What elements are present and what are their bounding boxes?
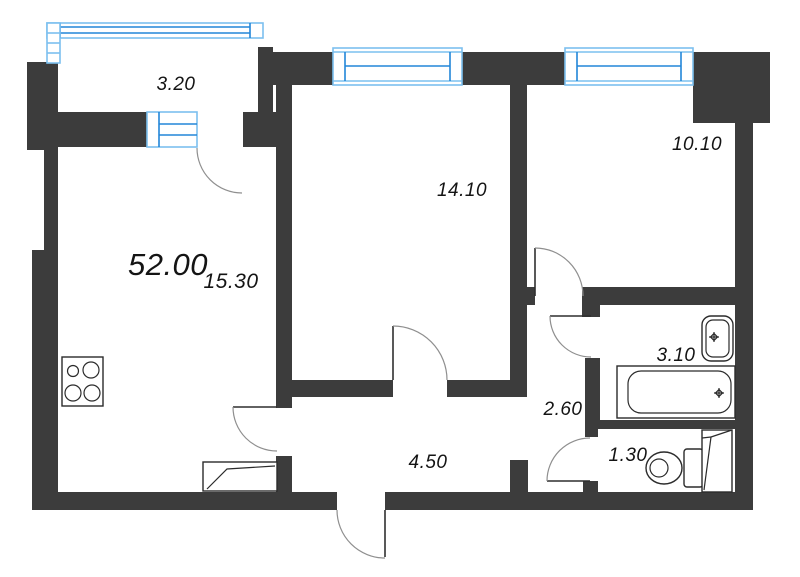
label-living-area: 15.30 — [203, 270, 258, 294]
wall-segment — [510, 460, 528, 492]
wall-segment — [510, 85, 527, 397]
balcony-glazing-icon — [47, 23, 263, 63]
wall-segment — [32, 492, 337, 510]
wall-segment — [44, 150, 58, 250]
wall-segment — [276, 85, 292, 380]
wall-segment — [32, 250, 58, 492]
wall-segment — [276, 456, 292, 492]
wc-door — [547, 438, 590, 481]
wall-segment — [693, 52, 770, 123]
wall-segment — [585, 358, 600, 420]
wall-segment — [527, 287, 535, 305]
wall-segment — [385, 492, 753, 510]
sink-icon — [702, 316, 733, 361]
stove-icon — [62, 357, 103, 406]
wall-segment — [462, 52, 575, 85]
label-bathroom-area: 3.10 — [657, 345, 696, 367]
window-icon — [333, 48, 462, 85]
window-icon — [565, 48, 693, 85]
label-hallway-area: 2.60 — [544, 399, 583, 421]
wall-segment — [585, 420, 737, 429]
bedroom-1-door — [393, 326, 447, 380]
wall-segment — [585, 429, 598, 437]
bathtub-icon — [617, 366, 735, 418]
water-heater-icon — [702, 430, 732, 492]
wall-segment — [292, 380, 393, 397]
wall-segment — [735, 123, 753, 510]
floor-plan-drawing — [0, 0, 800, 577]
label-total-area: 52.00 — [128, 247, 208, 283]
toilet-icon — [646, 449, 703, 487]
living-room-door — [233, 407, 277, 451]
balcony-door — [197, 148, 242, 193]
wall-segment — [276, 380, 292, 408]
wardrobe-icon — [203, 462, 277, 491]
wall-segment — [58, 112, 147, 147]
bathroom-door — [550, 316, 591, 357]
label-room-10-area: 10.10 — [672, 134, 722, 156]
bedroom-2-door — [535, 248, 583, 296]
balcony-window-unit-icon — [147, 112, 197, 147]
label-room-14-area: 14.10 — [437, 180, 487, 202]
wall-segment — [582, 287, 600, 317]
label-corridor-area: 4.50 — [409, 452, 448, 474]
entrance-door — [337, 510, 385, 558]
label-wc-area: 1.30 — [609, 445, 648, 467]
label-balcony-area: 3.20 — [157, 74, 196, 96]
wall-segment — [27, 62, 58, 150]
wall-segment — [583, 481, 598, 492]
wall-segment — [582, 287, 737, 305]
floor-plan: 3.20 14.10 10.10 52.00 15.30 3.10 2.60 1… — [0, 0, 800, 577]
wall-segment — [258, 47, 273, 117]
